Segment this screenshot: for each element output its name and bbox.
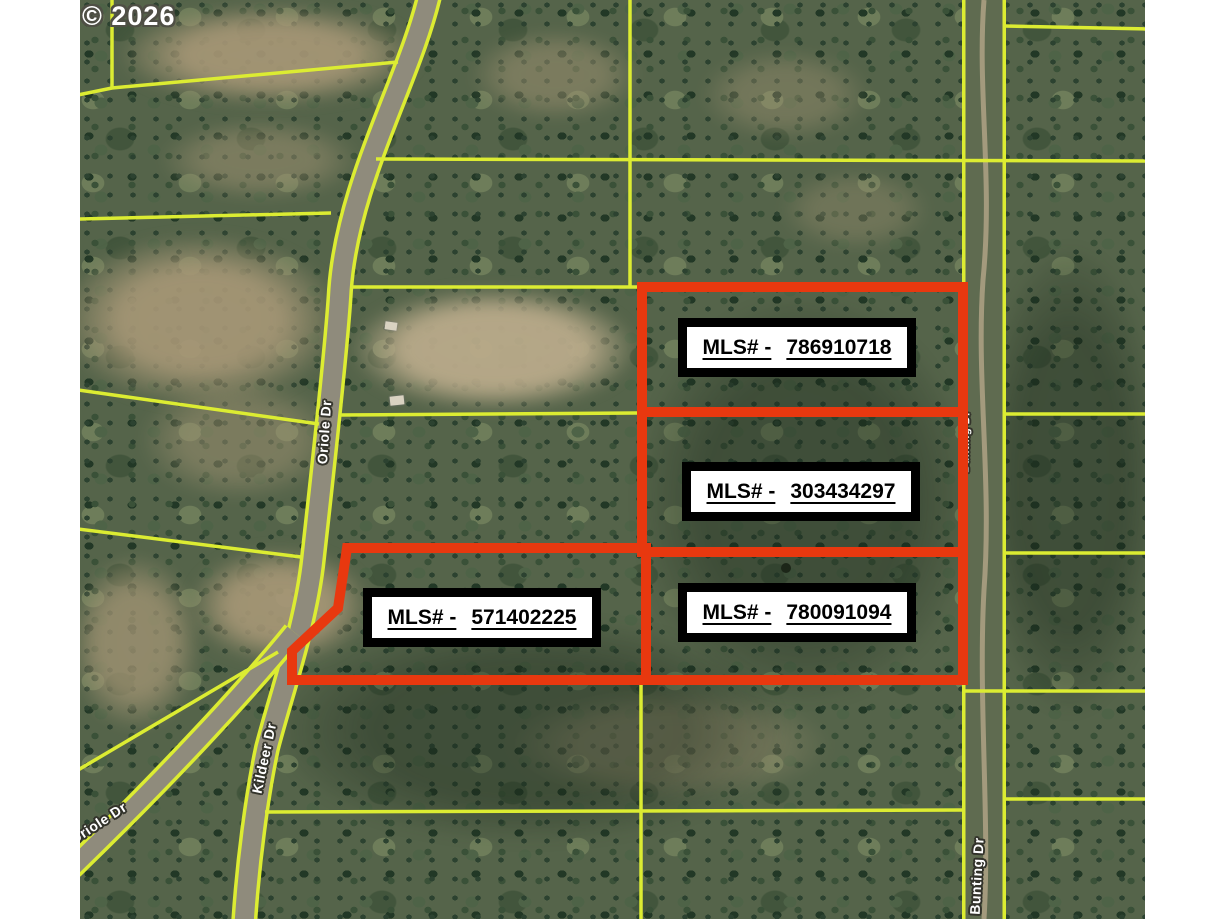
mls-prefix: MLS# - [388,606,457,630]
mls-label-780091094: MLS# - 780091094 [678,583,916,642]
parcel-map-screenshot: { "watermark": { "text": "© 2026" }, "ml… [0,0,1225,919]
copyright-watermark: © 2026 [82,1,175,32]
mls-prefix: MLS# - [703,336,772,360]
mls-prefix: MLS# - [703,601,772,625]
aerial-imagery: Oriole Dr Kildeer Dr Oriole Dr Bunting D… [80,0,1145,919]
mls-prefix: MLS# - [707,480,776,504]
mls-number: 303434297 [790,480,895,504]
mls-number: 786910718 [786,336,891,360]
mls-number: 780091094 [786,601,891,625]
mls-label-786910718: MLS# - 786910718 [678,318,916,377]
mls-label-303434297: MLS# - 303434297 [682,462,920,521]
mls-number: 571402225 [471,606,576,630]
mls-label-571402225: MLS# - 571402225 [363,588,601,647]
highlighted-parcels-layer [80,0,1145,919]
